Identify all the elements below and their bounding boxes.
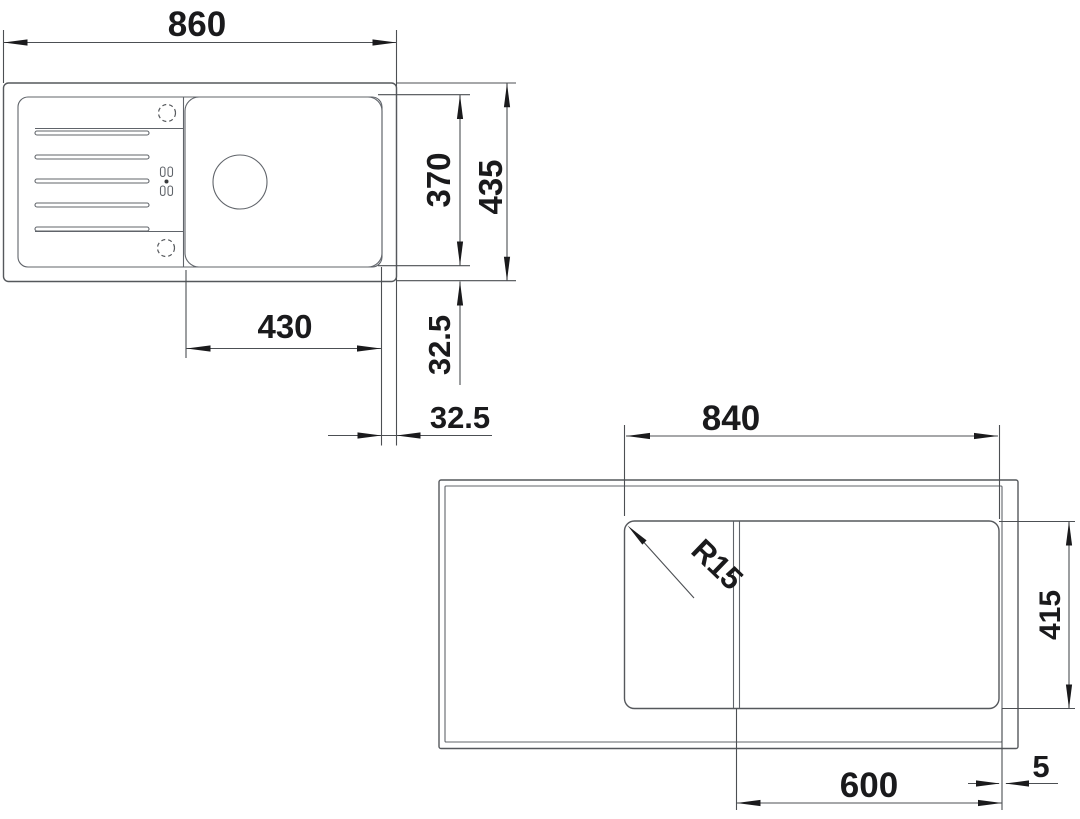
dim-cutout-width-label: 840 — [702, 399, 760, 438]
arrow-up-icon — [504, 83, 510, 107]
dim-overall-width: 860 — [4, 5, 397, 446]
dim-bowl-width-label: 430 — [257, 308, 312, 345]
arrow-up-icon — [457, 282, 463, 306]
dim-overall-depth-label: 435 — [472, 159, 509, 214]
arrow-right-icon — [358, 432, 382, 438]
overflow-mark — [161, 167, 173, 196]
worktop-inner-edge — [445, 486, 1002, 742]
arrow-right-icon — [373, 39, 397, 45]
dim-base-width-label: 600 — [840, 766, 898, 805]
arrow-up-icon — [1066, 522, 1072, 546]
dim-cutout-width: 840 — [625, 399, 1000, 519]
arrow-down-icon — [457, 242, 463, 266]
technical-drawing-page: 860 — [0, 0, 1080, 819]
dim-offset-side: 32.5 — [328, 400, 492, 439]
sink-bowl — [185, 97, 382, 267]
cutout-outline — [625, 521, 1000, 709]
dim-bowl-depth-label: 370 — [420, 152, 457, 207]
arrow-up-left-icon — [628, 526, 647, 545]
sink-outline — [4, 83, 397, 282]
tap-hole-bottom — [158, 240, 175, 257]
corner-radius-label: R15 — [685, 532, 750, 597]
drainboard — [35, 129, 183, 232]
arrow-left-icon — [1005, 780, 1029, 786]
dim-bowl-width: 430 — [186, 267, 382, 446]
overflow-slot — [168, 167, 173, 177]
drainboard-groove — [35, 203, 149, 207]
overflow-slot — [161, 167, 166, 177]
tap-hole-top — [159, 105, 176, 122]
dim-offset-bottom: 32.5 — [422, 282, 463, 386]
arrow-up-icon — [457, 95, 463, 119]
leader-line — [640, 538, 694, 598]
arrow-left-icon — [737, 800, 761, 806]
dim-base-width: 600 — [737, 709, 1003, 811]
overflow-slot — [168, 186, 173, 196]
dim-cutout-depth-label: 415 — [1034, 590, 1067, 640]
arrow-left-icon — [187, 345, 211, 351]
arrow-down-icon — [1066, 685, 1072, 709]
dim-edge-gap-label: 5 — [1032, 749, 1049, 784]
dim-offset-side-label: 32.5 — [430, 400, 490, 435]
dim-overall-width-label: 860 — [168, 5, 226, 44]
dim-edge-gap: 5 — [968, 749, 1058, 787]
dim-bowl-depth: 370 — [378, 95, 470, 266]
arrow-left-icon — [4, 39, 28, 45]
arrow-right-icon — [978, 800, 1002, 806]
dim-cutout-depth: 415 — [999, 522, 1075, 709]
dim-offset-bottom-label: 32.5 — [422, 315, 457, 375]
cutout-view: 840 R15 415 5 — [439, 399, 1075, 810]
drain-hole — [213, 155, 267, 209]
sink-top-view: 860 — [4, 5, 517, 446]
drainboard-groove — [35, 227, 149, 231]
arrow-left-icon — [626, 433, 650, 439]
sink-dimension-drawing: 860 — [0, 0, 1080, 819]
arrow-right-icon — [976, 780, 1000, 786]
arrow-right-icon — [974, 433, 998, 439]
overflow-slot — [161, 186, 166, 196]
arrow-down-icon — [504, 257, 510, 281]
sink-rim — [18, 97, 382, 267]
drainboard-groove — [35, 131, 149, 135]
drainboard-groove — [35, 179, 149, 183]
overflow-center-dot — [165, 180, 169, 184]
drainboard-groove — [35, 155, 149, 159]
arrow-left-icon — [397, 432, 421, 438]
arrow-right-icon — [357, 345, 381, 351]
corner-radius-callout: R15 — [628, 526, 750, 599]
